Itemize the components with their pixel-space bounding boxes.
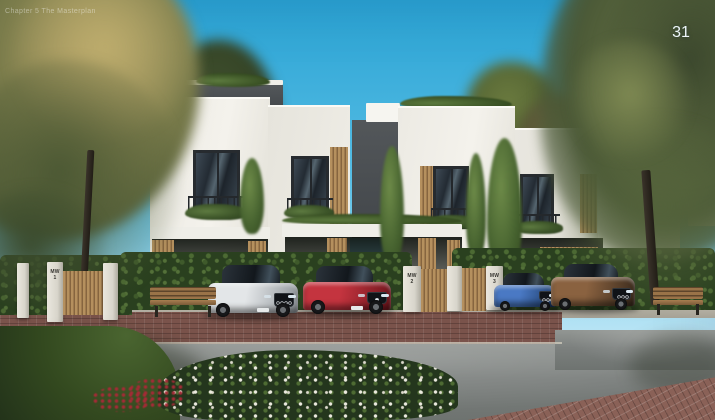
bench-leg <box>696 304 699 315</box>
flower-bed <box>158 350 458 420</box>
wood-gate <box>421 269 447 312</box>
parapet-box <box>366 103 400 122</box>
chapter-watermark: Chapter 5 The Masterplan <box>5 8 96 15</box>
car-wheel <box>559 298 571 310</box>
bench-backrest <box>150 287 216 299</box>
car-wheel <box>500 301 510 311</box>
unit1-balcony-planter <box>185 204 248 220</box>
bench-leg <box>208 306 211 317</box>
red-flowers <box>92 386 152 412</box>
car-wheel <box>369 300 383 314</box>
bench-leg <box>155 306 158 317</box>
wood-gate <box>462 268 486 311</box>
car-headlight <box>358 294 365 297</box>
license-plate <box>257 308 269 312</box>
unit-number-plate: MW2 <box>403 273 421 286</box>
license-plate <box>351 306 363 310</box>
gate-post-unit2: MW2 <box>403 266 421 312</box>
gate-post <box>17 263 29 318</box>
car-silver-sedan <box>208 265 298 317</box>
car-headlight <box>288 295 296 298</box>
car-headlight <box>381 294 389 297</box>
bench-backrest <box>653 287 703 299</box>
car-wheel <box>216 303 230 317</box>
bench-seat <box>150 300 216 305</box>
townhouse-rendering: MW1 MW2 MW3 <box>0 0 715 420</box>
unit-number-plate: MW1 <box>47 269 63 282</box>
car-blue-sedan <box>494 273 556 311</box>
wooden-bench-right <box>653 287 703 305</box>
page-number: 31 <box>665 24 697 42</box>
car-headlight <box>264 295 271 298</box>
car-wheel <box>311 300 325 314</box>
roof-planting <box>196 73 270 87</box>
main-canopy <box>282 224 462 237</box>
bench-leg <box>657 304 660 315</box>
car-wheel <box>276 303 290 317</box>
car-bronze-suv <box>551 264 635 310</box>
car-red-coupe <box>303 266 391 314</box>
gate-post <box>447 266 462 311</box>
gate-post <box>103 263 118 320</box>
wooden-bench-left <box>150 287 216 307</box>
wood-gate <box>63 271 103 315</box>
gate-post-unit1: MW1 <box>47 262 63 322</box>
